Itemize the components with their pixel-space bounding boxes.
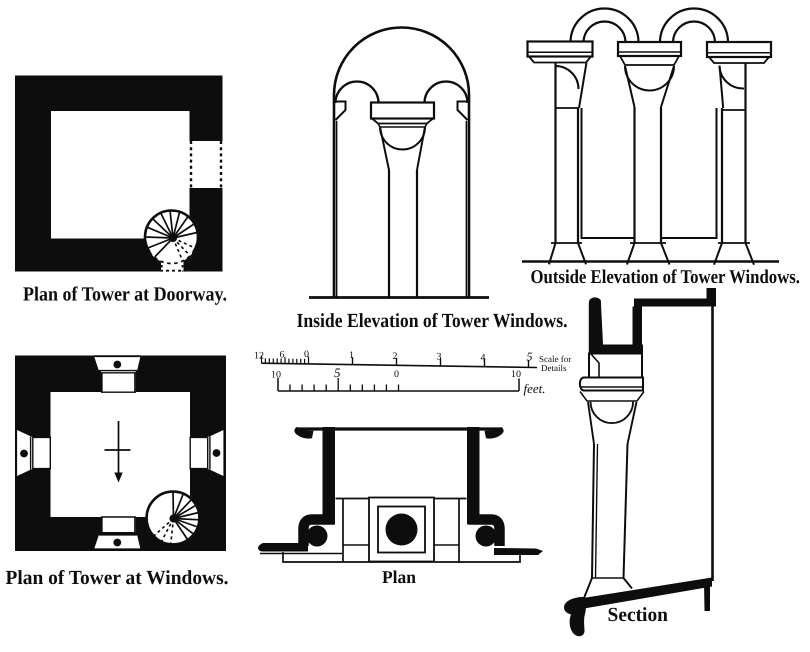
- svg-text:10: 10: [511, 369, 521, 380]
- svg-text:Section: Section: [608, 604, 669, 626]
- svg-text:Inside Elevation of Tower Wind: Inside Elevation of Tower Windows.: [297, 310, 568, 332]
- svg-text:0: 0: [304, 349, 309, 360]
- svg-text:Plan of Tower at Doorway.: Plan of Tower at Doorway.: [23, 284, 227, 306]
- svg-text:Details: Details: [541, 363, 567, 373]
- svg-text:5: 5: [334, 365, 341, 380]
- svg-text:3: 3: [437, 352, 442, 363]
- svg-text:feet.: feet.: [524, 381, 546, 396]
- svg-text:0: 0: [394, 369, 399, 380]
- svg-text:12: 12: [254, 351, 264, 362]
- svg-text:2: 2: [393, 351, 398, 362]
- svg-text:Plan of Tower at Windows.: Plan of Tower at Windows.: [6, 567, 229, 589]
- svg-text:1: 1: [349, 350, 354, 361]
- svg-text:5: 5: [527, 350, 533, 364]
- svg-text:Outside Elevation of Tower Win: Outside Elevation of Tower Windows.: [531, 267, 801, 288]
- svg-text:6: 6: [280, 350, 285, 361]
- svg-text:10: 10: [271, 370, 281, 381]
- svg-text:4: 4: [481, 353, 486, 364]
- svg-text:Plan: Plan: [382, 567, 416, 587]
